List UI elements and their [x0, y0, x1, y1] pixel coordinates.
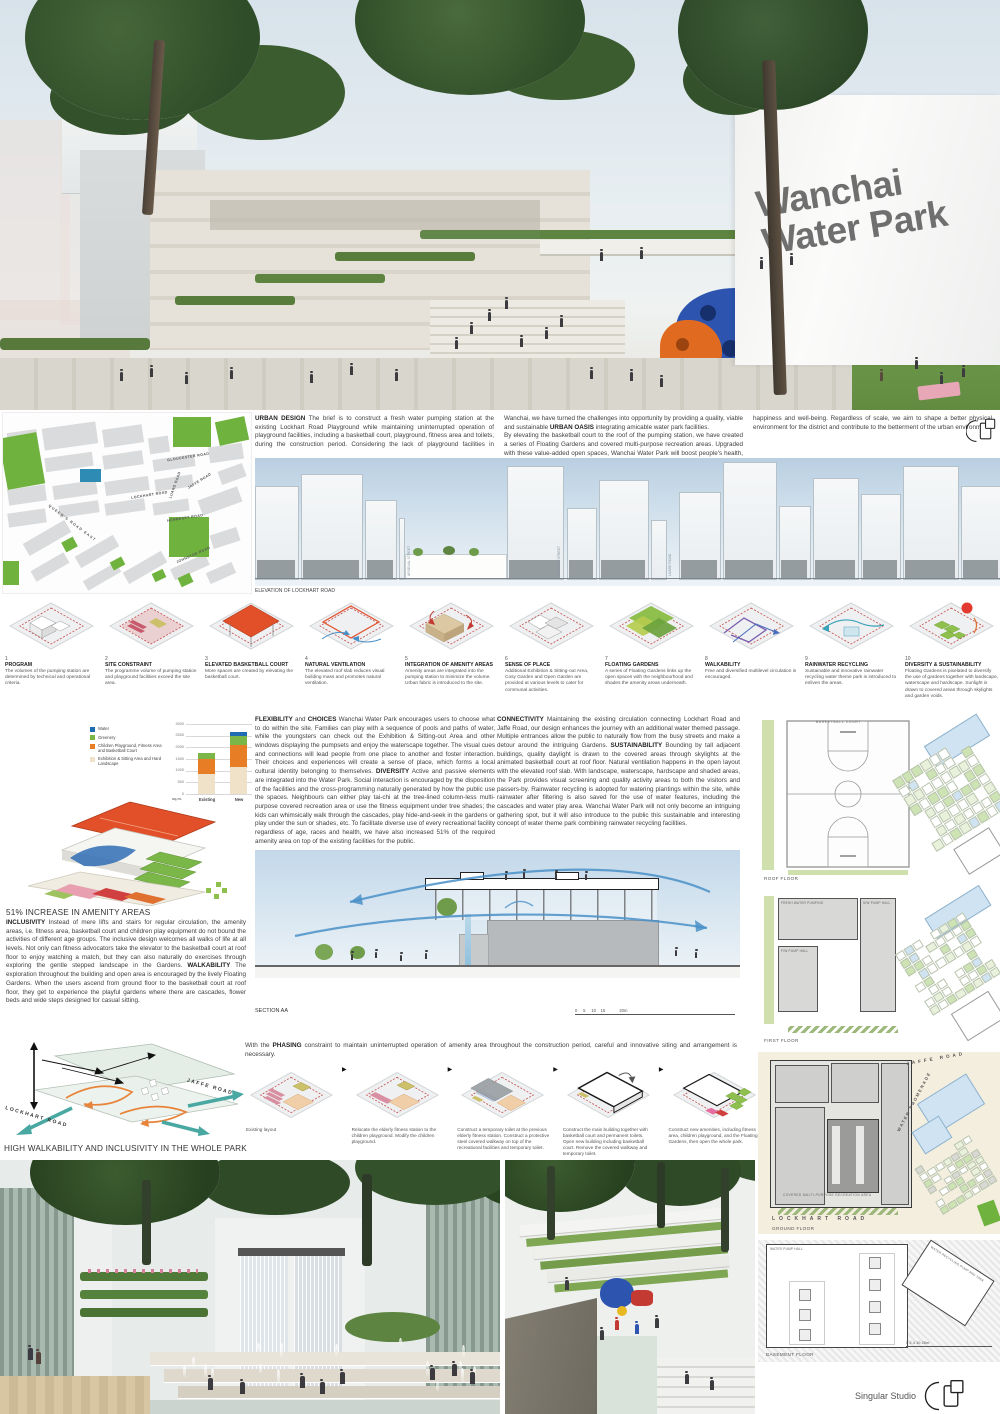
roof-floor-plan: BASKETBALL COURT ROOF FLOOR [758, 714, 1000, 884]
person-silhouette [400, 955, 402, 961]
elevation-podium [963, 560, 998, 578]
elevation-podium [601, 560, 645, 578]
plan-room [831, 1063, 879, 1103]
phase-item: Relocate the elderly fitness station to … [351, 1064, 444, 1158]
pump-hall: F/W PUMP HALL [778, 946, 818, 1012]
concept-item: 1PROGRAMThe volumes of the pumping stati… [4, 597, 99, 715]
studio-name: Singular Studio [855, 1391, 916, 1401]
recycling-tank-room: WATER RECYCLING PUMP AND TANK [901, 1240, 994, 1327]
thumbnail-drawing [904, 597, 999, 655]
legend-item: Water [90, 726, 162, 732]
bar-segment [198, 774, 215, 794]
ground-floor-plan: COVERED MULTI-PURPOSE RECREATION AREA JA… [758, 1052, 1000, 1234]
map-block [217, 463, 246, 485]
legend-label: Exhibition & Sitting Area and Hard Lands… [98, 756, 162, 766]
concept-item: 6SENSE OF PLACEAdditional Exhibition & S… [504, 597, 599, 715]
legend-item: Exhibition & Sitting Area and Hard Lands… [90, 756, 162, 766]
section-aa-drawing [255, 850, 740, 978]
gridline [186, 724, 252, 725]
map-block [102, 424, 144, 447]
person-silhouette [675, 950, 677, 956]
thumbnail-drawing [404, 597, 499, 655]
person-silhouette [600, 1330, 604, 1340]
site-tree [469, 548, 479, 556]
site-tree [413, 548, 423, 556]
person-silhouette [28, 1348, 33, 1360]
thumbnail-drawing [562, 1064, 655, 1126]
amenity-paragraph: INCLUSIVITY Instead of mere lifts and st… [6, 919, 246, 1006]
concept-item: 7FLOATING GARDENSA series of Floating Ga… [604, 597, 699, 715]
legend-swatch [90, 744, 95, 749]
phase-arrow-icon: ▶ [553, 1066, 558, 1073]
studio-footer: Singular Studio [855, 1380, 1000, 1412]
concept-item: 9RAINWATER RECYCLINGSustainable and inno… [804, 597, 899, 715]
elevation-building [651, 520, 667, 580]
phase-item: Construct the main building together wit… [562, 1064, 655, 1158]
thumbnail-drawing [456, 1064, 549, 1126]
basement-floor-label: BASEMENT FLOOR [766, 1352, 814, 1357]
concept-item: 2SITE CONSTRAINTThe programme volume of … [104, 597, 199, 715]
walkability-caption: HIGH WALKABILITY AND INCLUSIVITY IN THE … [4, 1144, 247, 1153]
y-tick-label: 0 [172, 792, 184, 796]
render-cascades [0, 1160, 500, 1414]
person-silhouette [430, 1368, 435, 1380]
green-strip [762, 720, 774, 870]
connectivity-text: CONNECTIVITY Maintaining the existing ci… [497, 716, 740, 829]
amenity-text: 51% INCREASE IN AMENITY AREAS INCLUSIVIT… [6, 908, 246, 1006]
park-patch [977, 1200, 1000, 1227]
concept-item: 3ELEVATED BASKETBALL COURTMore spaces ar… [204, 597, 299, 715]
column [869, 1257, 881, 1269]
person-silhouette [310, 374, 313, 383]
phase-thumbnail [668, 1064, 761, 1126]
phase-arrow-icon: ▶ [342, 1066, 347, 1073]
elevation-podium [509, 560, 560, 578]
map-block [206, 562, 236, 584]
site-map: GLOUCESTER ROAD JAFFE ROAD LOCKHART ROAD… [2, 412, 252, 594]
person-silhouette [585, 874, 587, 880]
bar-segment [230, 736, 247, 745]
person-silhouette [760, 260, 763, 269]
landscape-steps [778, 1208, 898, 1215]
person-silhouette [470, 325, 473, 334]
y-tick-label: 2500 [172, 733, 184, 737]
person-silhouette [425, 953, 427, 959]
basketball-court-drawing [784, 718, 912, 870]
person-silhouette [523, 872, 525, 878]
basement-scale-bar: 0 2 4 10 20m [906, 1340, 994, 1347]
recreation-area-label: COVERED MULTI-PURPOSE RECREATION AREA [783, 1193, 871, 1197]
elevation-podium [863, 560, 897, 578]
map-block [210, 527, 241, 549]
column [869, 1323, 881, 1335]
connectivity-paragraph: CONNECTIVITY Maintaining the existing ci… [497, 716, 740, 829]
chart-plot: 050010001500200025003000sq.m.ExistingNew [172, 722, 252, 810]
phasing-intro: With the PHASING constraint to maintain … [245, 1042, 737, 1060]
map-block [148, 436, 170, 455]
concept-thumbnail [804, 597, 899, 655]
concept-thumbnail [104, 597, 199, 655]
lockhart-road-label: LOCKHART ROAD [772, 1216, 868, 1222]
person-silhouette [150, 368, 153, 377]
hero-rendering: Wanchai Water Park [0, 0, 1000, 410]
column [799, 1329, 811, 1341]
phase-thumbnail [245, 1064, 338, 1126]
bar-segment [230, 767, 247, 794]
amenity-heading: 51% INCREASE IN AMENITY AREAS [6, 908, 246, 917]
person-silhouette [640, 250, 643, 259]
person-silhouette [36, 1352, 41, 1364]
jaffe-road-label: JAFFE ROAD [906, 1051, 965, 1066]
people-group [0, 0, 1000, 410]
legend-swatch [90, 727, 95, 732]
section-scale-bar: 0 5 10 15 20m [575, 1008, 740, 1015]
person-silhouette [660, 378, 663, 387]
person-silhouette [555, 873, 557, 879]
studio-logo [966, 417, 996, 450]
site-marker [80, 469, 101, 482]
concept-diagram-strip: 1PROGRAMThe volumes of the pumping stati… [4, 597, 996, 715]
elevation-label: ELEVATION OF LOCKHART ROAD [255, 588, 335, 594]
person-silhouette [790, 256, 793, 265]
elevation-street-label: FENWICK STREET [557, 546, 561, 576]
basement-floor-plan: WATER PUMP HALL WATER RECYCLING PUMP AND… [758, 1240, 1000, 1362]
elevation-podium [681, 560, 717, 578]
elevation-podium [905, 560, 955, 578]
y-tick-label: 1000 [172, 768, 184, 772]
legend-swatch [90, 757, 95, 762]
thumbnail-drawing [804, 597, 899, 655]
person-silhouette [630, 372, 633, 381]
presentation-board: Wanchai Water Park GLOUCESTER ROAD JAFFE… [0, 0, 1000, 1414]
map-block [208, 443, 244, 464]
pump-hall: FRESH WATER PUMPING [778, 898, 858, 940]
map-block [42, 421, 99, 450]
exploded-axon-diagram [10, 800, 248, 906]
concept-thumbnail [204, 597, 299, 655]
walkability-diagram: LOCKHART ROAD JAFFE ROAD [0, 1040, 250, 1142]
green-strip [788, 870, 908, 875]
concept-item: 8WALKABILITYFree and diversified multile… [704, 597, 799, 715]
flexibility-text: FLEXIBILITY and CHOICES Wanchai Water Pa… [255, 716, 495, 846]
person-silhouette [300, 1376, 305, 1388]
phase-arrow-icon: ▶ [448, 1066, 453, 1073]
y-tick-label: 3000 [172, 722, 184, 726]
concept-thumbnail [904, 597, 999, 655]
map-block [52, 480, 98, 500]
thumbnail-drawing [704, 597, 799, 655]
person-silhouette [565, 1280, 569, 1290]
person-silhouette [545, 330, 548, 339]
person-silhouette [240, 1382, 245, 1394]
legend-label: Greenery [98, 735, 115, 740]
person-silhouette [505, 300, 508, 309]
elevation-buildings [255, 458, 1000, 586]
elevation-podium [781, 560, 807, 578]
concept-thumbnail [704, 597, 799, 655]
person-silhouette [470, 1372, 475, 1384]
render-playground [505, 1160, 755, 1414]
person-silhouette [520, 338, 523, 347]
person-silhouette [962, 368, 965, 377]
column [869, 1279, 881, 1291]
legend-item: Children Playground, Fitness Area and Ba… [90, 743, 162, 753]
person-silhouette [120, 372, 123, 381]
person-silhouette [351, 954, 353, 960]
concept-item: 5INTEGRATION OF AMENITY AREASAmenity are… [404, 597, 499, 715]
person-silhouette [915, 360, 918, 369]
map-block [7, 508, 47, 527]
legend-label: Children Playground, Fitness Area and Ba… [98, 743, 162, 753]
column [799, 1309, 811, 1321]
y-tick-label: 1500 [172, 757, 184, 761]
axon-drawing [10, 800, 248, 906]
legend-label: Water [98, 726, 109, 731]
person-silhouette [590, 370, 593, 379]
green-strip [764, 896, 774, 1024]
first-floor-plan: FRESH WATER PUMPING F/W PUMP HALL S/W PU… [758, 888, 1000, 1048]
moon-squares-logo-icon [966, 417, 996, 445]
fixture-row [856, 1126, 864, 1184]
concept-item: 4NATURAL VENTILATIONThe elevated roof sl… [304, 597, 399, 715]
person-silhouette [710, 1380, 714, 1390]
column [869, 1301, 881, 1313]
thumbnail-drawing [204, 597, 299, 655]
legend-item: Greenery [90, 735, 162, 741]
first-floor-label: FIRST FLOOR [764, 1038, 799, 1043]
park-area [173, 417, 211, 447]
thumbnail-drawing [504, 597, 599, 655]
legend-swatch [90, 735, 95, 740]
person-silhouette [320, 1382, 325, 1394]
park-area [3, 561, 19, 585]
elevation-podium [367, 560, 393, 578]
concept-thumbnail [4, 597, 99, 655]
elevation-drawing: ARSENAL STREET FENWICK STREET LUARD ROAD [255, 458, 1000, 586]
thumbnail-drawing [604, 597, 699, 655]
thumbnail-drawing [304, 597, 399, 655]
elevation-podium [569, 560, 593, 578]
concept-thumbnail [304, 597, 399, 655]
section-label: SECTION AA [255, 1008, 288, 1014]
person-silhouette [455, 340, 458, 349]
moon-squares-logo-icon [924, 1379, 966, 1413]
roof-floor-label: ROOF FLOOR [764, 876, 798, 881]
person-silhouette [452, 1364, 457, 1376]
person-silhouette [340, 1372, 345, 1384]
map-block [198, 486, 243, 515]
phase-thumbnail [562, 1064, 655, 1126]
person-silhouette [505, 874, 507, 880]
pump-hall: S/W PUMP HALL [860, 898, 896, 1012]
person-silhouette [695, 952, 697, 958]
site-tree [443, 546, 455, 555]
person-silhouette [395, 372, 398, 381]
person-silhouette [230, 370, 233, 379]
bar-segment [198, 759, 215, 774]
elevation-street-label: LUARD ROAD [668, 554, 672, 576]
concept-thumbnail [504, 597, 599, 655]
y-tick-label: 500 [172, 780, 184, 784]
phase-thumbnail [456, 1064, 549, 1126]
map-block [31, 552, 70, 581]
column [799, 1289, 811, 1301]
concept-item: 10DIVERSITY & SUSTAINABILITYFloating Gar… [904, 597, 999, 715]
map-block [104, 498, 145, 515]
map-block [152, 499, 189, 516]
ground-line [255, 578, 1000, 579]
person-silhouette [880, 372, 883, 381]
person-silhouette [615, 1320, 619, 1330]
concept-thumbnail [604, 597, 699, 655]
phasing-steps: Existing layout ▶ Relocate the elderly f… [245, 1064, 737, 1158]
section-people [255, 850, 740, 978]
basement-hall: WATER PUMP HALL [766, 1244, 908, 1348]
elevation-street-label: ARSENAL STREET [407, 546, 411, 576]
person-silhouette [560, 318, 563, 327]
elevation-podium [725, 560, 773, 578]
y-tick-label: 2000 [172, 745, 184, 749]
person-silhouette [685, 1374, 689, 1384]
phase-item: Construct a temporary toilet at the prev… [456, 1064, 549, 1158]
bar-segment [198, 753, 215, 759]
person-silhouette [600, 252, 603, 261]
concept-thumbnail [404, 597, 499, 655]
person-silhouette [375, 952, 377, 958]
bar-segment [230, 732, 247, 736]
landscape-steps [788, 1026, 898, 1033]
phasing-strip: With the PHASING constraint to maintain … [245, 1042, 737, 1157]
phase-item: Construct new amenities, including fitne… [668, 1064, 761, 1158]
gridline [186, 794, 252, 795]
people-group [505, 1160, 755, 1414]
person-silhouette [940, 375, 943, 384]
ground-floor-label: GROUND FLOOR [772, 1226, 814, 1231]
phase-arrow-icon: ▶ [659, 1066, 664, 1073]
plan-room [775, 1107, 825, 1205]
elevation-podium [303, 560, 359, 578]
map-block [23, 520, 72, 556]
map-block [102, 450, 144, 469]
person-silhouette [655, 1318, 659, 1328]
thumbnail-drawing [4, 597, 99, 655]
map-building-blocks [3, 413, 251, 593]
toilet-core [827, 1119, 879, 1193]
person-silhouette [350, 366, 353, 375]
site-section [405, 554, 507, 580]
phase-thumbnail [351, 1064, 444, 1126]
person-silhouette [208, 1378, 213, 1390]
plan-room [881, 1063, 909, 1205]
chart-legend: WaterGreeneryChildren Playground, Fitnes… [90, 726, 162, 769]
plan-room [775, 1065, 829, 1103]
people-group [0, 1160, 500, 1414]
thumbnail-drawing [351, 1064, 444, 1126]
elevation-podium [815, 560, 855, 578]
thumbnail-drawing [104, 597, 199, 655]
thumbnail-drawing [245, 1064, 338, 1126]
person-silhouette [185, 375, 188, 384]
flexibility-paragraph: FLEXIBILITY and CHOICES Wanchai Water Pa… [255, 716, 495, 846]
court-label: BASKETBALL COURT [816, 720, 861, 724]
bar-segment [230, 745, 247, 767]
thumbnail-drawing [668, 1064, 761, 1126]
person-silhouette [488, 312, 491, 321]
ground-plan-building: COVERED MULTI-PURPOSE RECREATION AREA [770, 1060, 912, 1208]
phase-item: Existing layout [245, 1064, 338, 1158]
elevation-podium [257, 560, 295, 578]
person-silhouette [635, 1324, 639, 1334]
fixture-row [832, 1126, 840, 1184]
